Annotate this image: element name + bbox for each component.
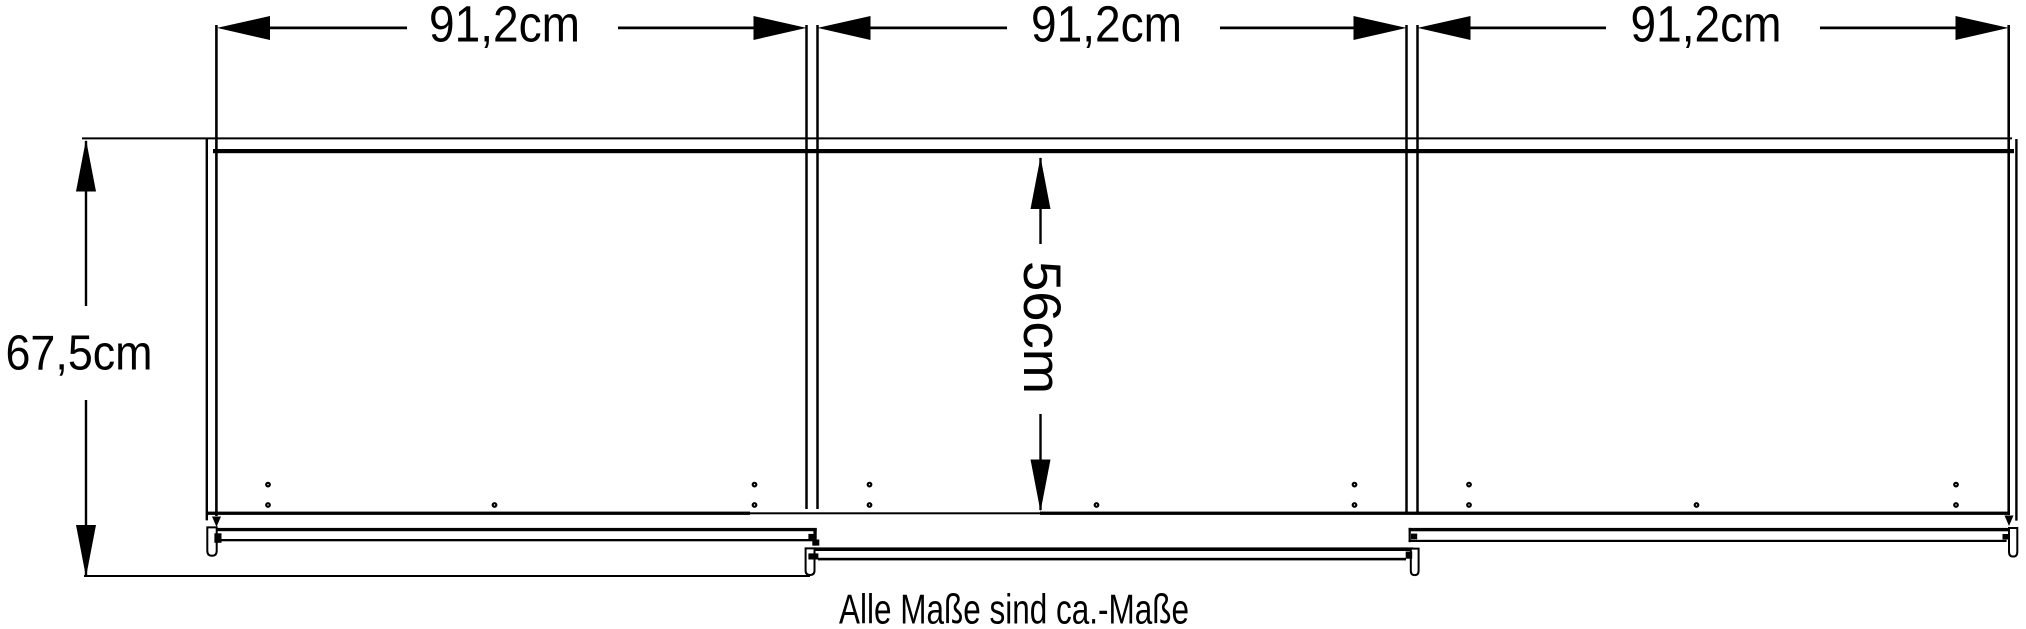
svg-text:67,5cm: 67,5cm: [6, 326, 153, 380]
svg-text:Alle Maße sind ca.-Maße: Alle Maße sind ca.-Maße: [839, 586, 1189, 629]
svg-text:91,2cm: 91,2cm: [1631, 0, 1782, 53]
svg-text:91,2cm: 91,2cm: [429, 0, 580, 53]
svg-text:56cm: 56cm: [1012, 261, 1071, 394]
svg-text:91,2cm: 91,2cm: [1031, 0, 1182, 53]
